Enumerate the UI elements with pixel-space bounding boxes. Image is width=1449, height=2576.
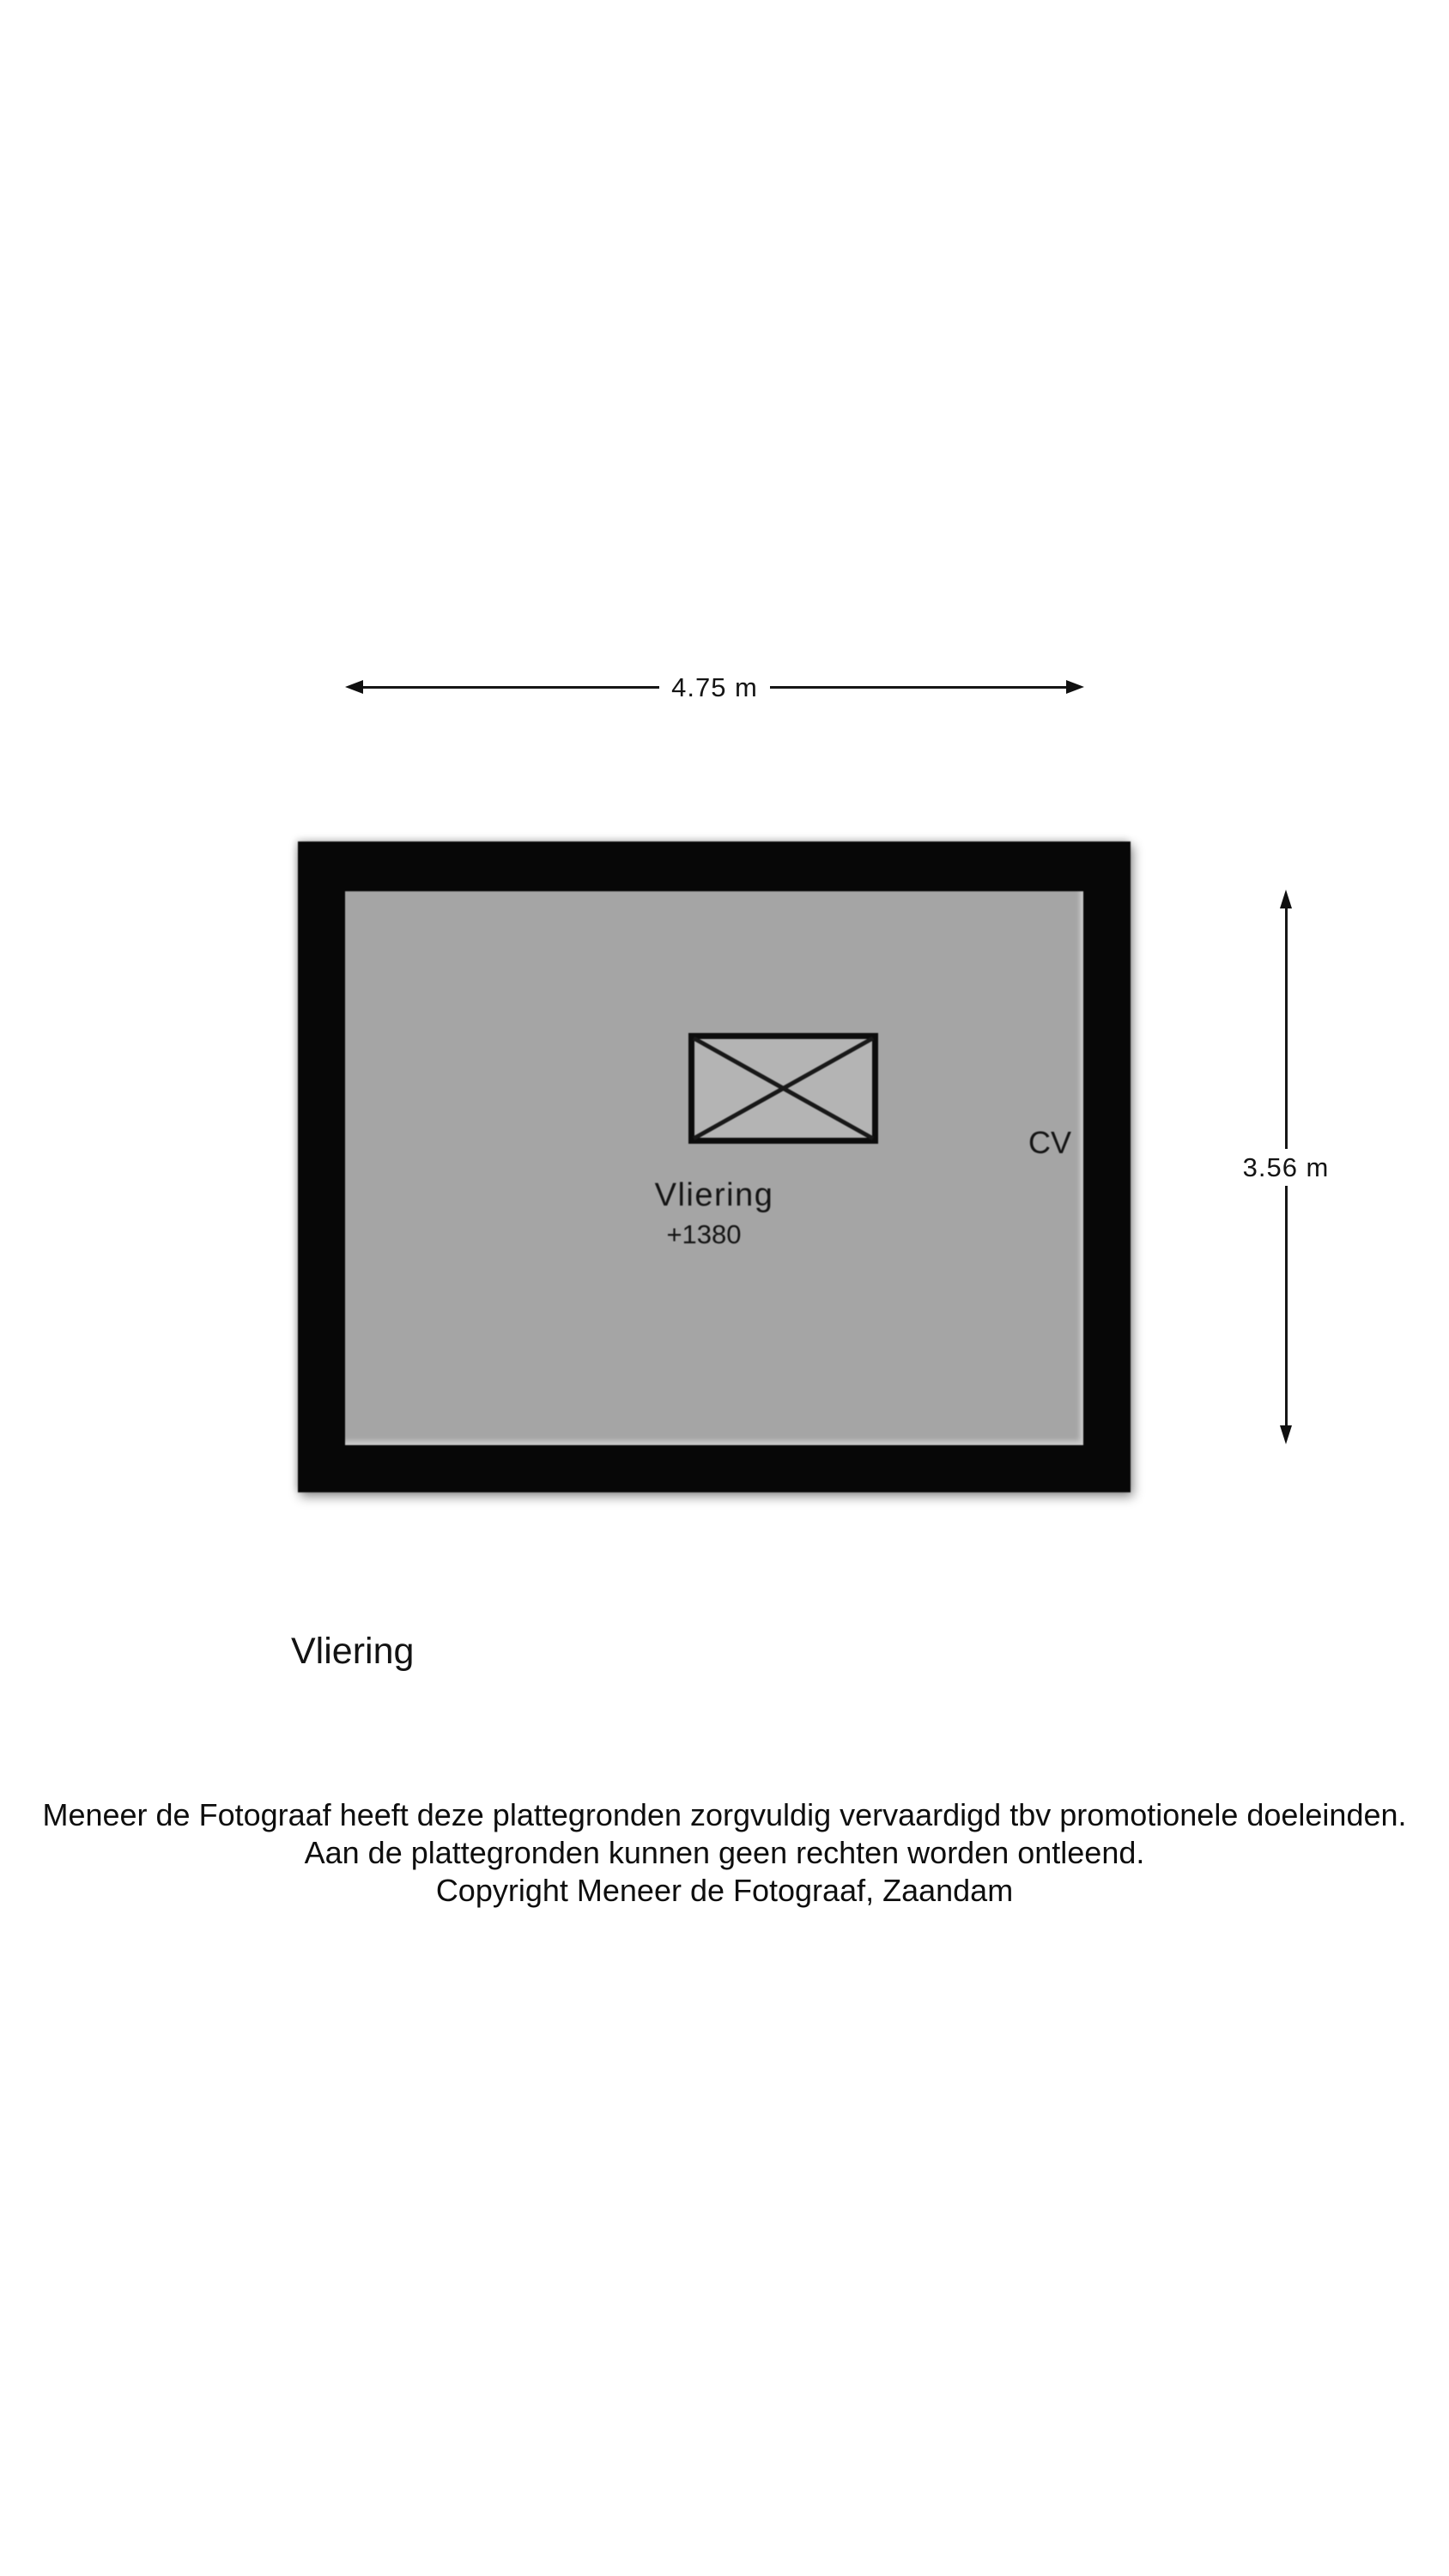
- disclaimer-line: Copyright Meneer de Fotograaf, Zaandam: [0, 1872, 1449, 1910]
- width-dimension: 4.75 m: [345, 670, 1084, 704]
- room-elevation-label: +1380: [335, 1217, 1073, 1253]
- height-dimension-label: 3.56 m: [1243, 1149, 1330, 1186]
- dimension-line: [1285, 1186, 1288, 1426]
- floorplan-page: 4.75 m Vliering +1380 CV 3.56 m Vliering: [0, 0, 1449, 2576]
- disclaimer-line: Meneer de Fotograaf heeft deze plattegro…: [0, 1796, 1449, 1834]
- floorplan-drawing: Vliering +1380 CV: [298, 841, 1131, 1492]
- cv-unit-label: CV: [1028, 1125, 1071, 1161]
- room-name-label: Vliering: [345, 1176, 1083, 1214]
- room-floor: Vliering +1380 CV: [345, 891, 1083, 1445]
- hatch-opening-icon: [688, 1033, 878, 1144]
- width-dimension-label: 4.75 m: [659, 674, 770, 701]
- dimension-line: [1285, 908, 1288, 1149]
- dimension-line: [770, 686, 1066, 689]
- arrow-right-icon: [1066, 680, 1084, 694]
- disclaimer-line: Aan de plattegronden kunnen geen rechten…: [0, 1834, 1449, 1872]
- floor-title: Vliering: [291, 1630, 414, 1673]
- arrow-left-icon: [345, 680, 363, 694]
- disclaimer: Meneer de Fotograaf heeft deze plattegro…: [0, 1796, 1449, 1910]
- dimension-line: [363, 686, 659, 689]
- arrow-up-icon: [1280, 890, 1292, 908]
- arrow-down-icon: [1280, 1425, 1292, 1444]
